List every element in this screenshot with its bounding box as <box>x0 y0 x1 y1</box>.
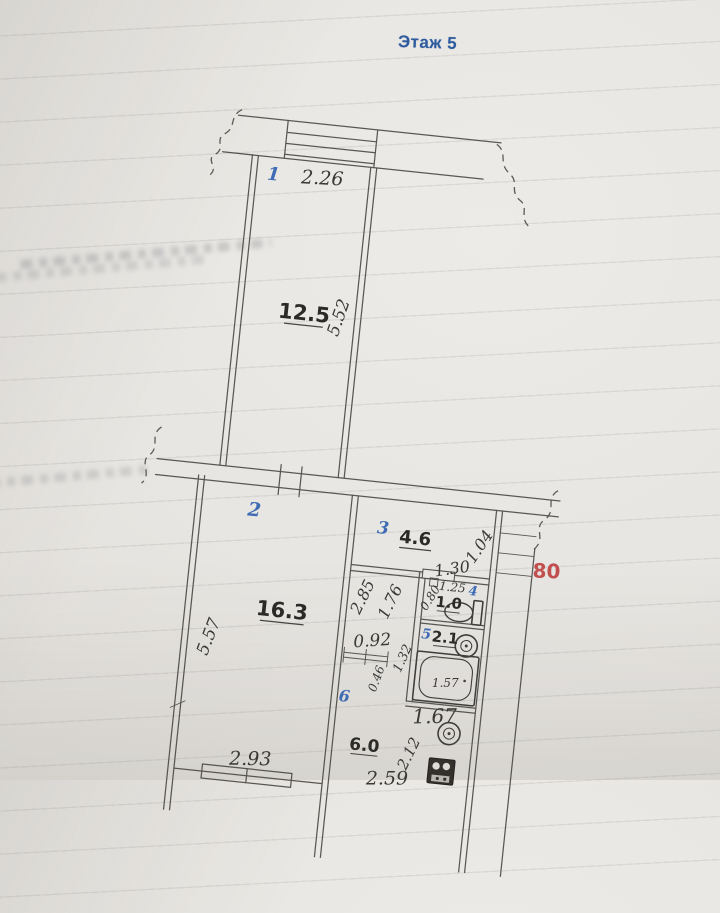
living-room-number: 2 <box>246 498 262 521</box>
stove-icon <box>427 758 455 786</box>
balcony-number: 1 <box>266 164 281 186</box>
hall-area: 4.6 <box>398 526 432 550</box>
bath-width-dim-167: 1.67 <box>412 704 457 729</box>
hall-number: 3 <box>376 518 390 539</box>
wc-dim-125: 1.25 <box>438 579 466 596</box>
break-lines <box>139 103 594 551</box>
living-room-depth-dim: 5.57 <box>193 615 225 658</box>
kitchen-dim-259: 2.59 <box>365 767 408 789</box>
floor-plan-drawing: 1 2.26 12.5 5.52 2 16.3 5.57 2.93 3 4.6 … <box>103 99 618 881</box>
shaft-width-label: 80 <box>532 558 561 583</box>
wc-number: 4 <box>468 584 479 600</box>
kitchen-number: 6 <box>338 686 351 706</box>
floor-title: Этаж 5 <box>398 32 458 54</box>
hall-dim-046: 0.46 <box>365 663 387 693</box>
plan-walls <box>117 111 596 879</box>
bath-number: 5 <box>421 626 432 643</box>
scanned-floor-plan-page: { "header": { "floor": "Этаж 5" }, "shaf… <box>0 0 720 780</box>
hall-dim-092: 0.92 <box>353 630 392 653</box>
hall-dim-176: 1.76 <box>374 581 407 621</box>
floor-plan: 1 2.26 12.5 5.52 2 16.3 5.57 2.93 3 4.6 … <box>103 99 618 881</box>
area-underlines <box>240 323 488 763</box>
living-room-width-dim: 2.93 <box>228 748 272 771</box>
bathtub-dim-157: 1.57 <box>432 676 459 690</box>
bleed-through-text-smudge <box>0 465 148 488</box>
bath-dim-132: 1.32 <box>390 642 415 675</box>
balcony-width-dim: 2.26 <box>300 166 344 190</box>
bath-area: 2.1 <box>431 627 459 648</box>
